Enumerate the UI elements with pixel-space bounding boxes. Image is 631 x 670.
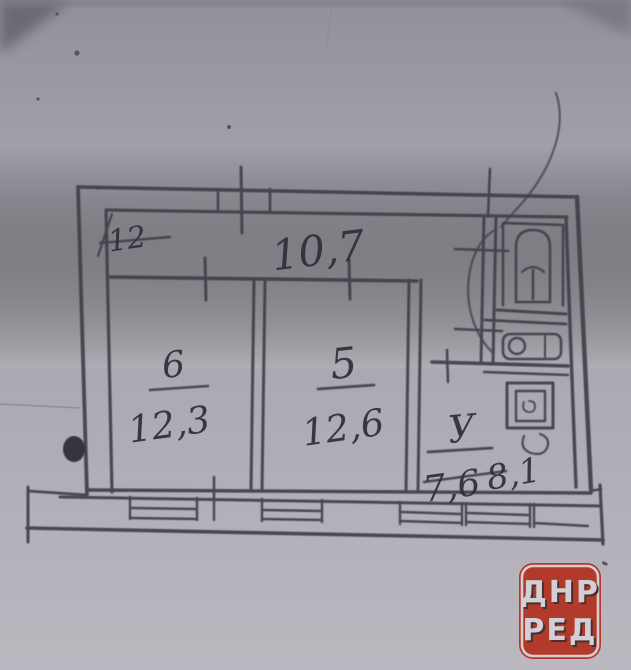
watermark-badge: ДНР РЕД ДНР РЕД (519, 563, 602, 659)
dimension-tick-hall-1 (205, 258, 206, 300)
roomU-area-old: 7,6 (421, 462, 483, 511)
watermark-line1: ДНР (520, 575, 600, 610)
corner-scribble-label: 12 (106, 220, 149, 260)
dimension-tick-kitchen (447, 350, 448, 382)
paper-top-edge (0, 0, 631, 7)
watermark-line2: РЕД (522, 613, 597, 648)
dimension-tick-top (241, 167, 242, 233)
room6-number: 6 (160, 344, 187, 387)
ink-blob (63, 436, 85, 462)
floorplan-photo: 12 10,7 6 12,3 5 12,6 У 7,6 8,1 ДНР РЕД … (0, 0, 631, 670)
floorplan-sketch: 12 10,7 6 12,3 5 12,6 У 7,6 8,1 ДНР РЕД … (0, 0, 631, 670)
room5-number: 5 (328, 338, 360, 390)
